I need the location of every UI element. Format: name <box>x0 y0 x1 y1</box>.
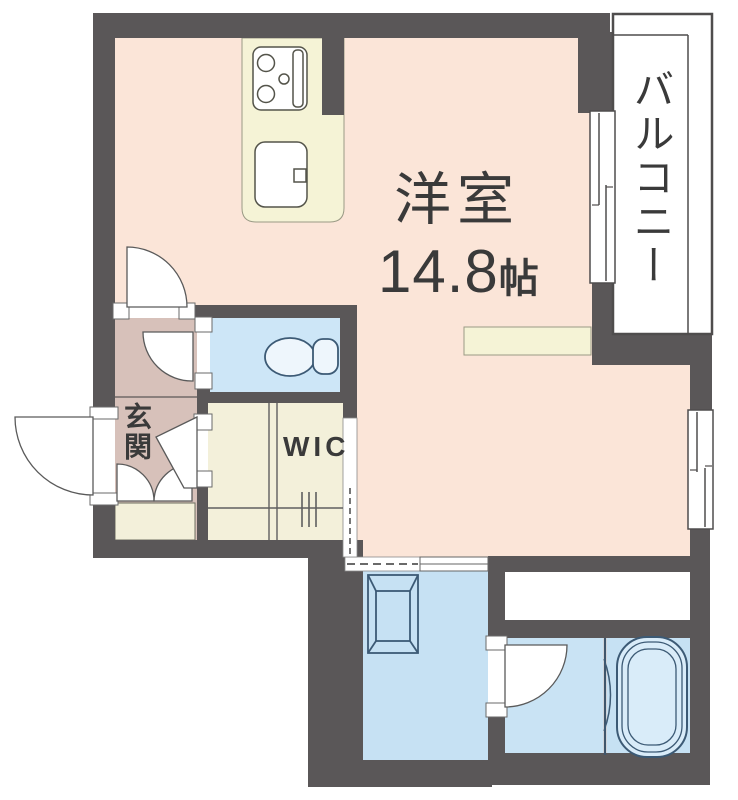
gas-stove-icon <box>253 47 307 110</box>
washroom-floor <box>363 570 488 762</box>
kitchen-sink-icon <box>255 142 307 207</box>
floor-plan: 洋室 14.8帖 バルコニー 玄関 WIC <box>0 0 738 800</box>
entrance-door-swing <box>15 417 93 495</box>
bathtub-icon <box>617 637 687 757</box>
main-room-size-value: 14.8 <box>378 238 499 305</box>
shoe-cabinet <box>115 503 195 540</box>
toilet-icon <box>265 338 338 376</box>
sliding-panel <box>420 557 488 571</box>
main-room-label: 洋室 <box>394 172 520 229</box>
main-room-size-unit: 帖 <box>499 257 540 301</box>
balcony-label: バルコニー <box>629 68 670 308</box>
balcony-window <box>590 111 615 283</box>
open-passage-dashed <box>345 557 420 571</box>
wic-floor <box>208 403 343 540</box>
side-window <box>688 410 713 529</box>
counter-strip <box>464 327 591 355</box>
main-room-size-label: 14.8帖 <box>378 242 540 302</box>
wic-label: WIC <box>283 433 349 461</box>
entrance-label: 玄関 <box>122 402 150 462</box>
